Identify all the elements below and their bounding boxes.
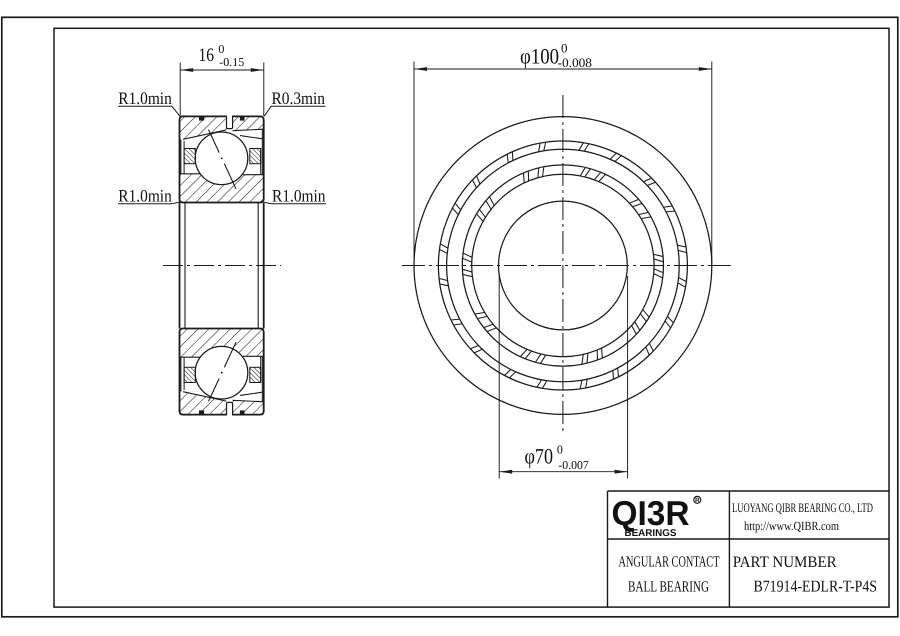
svg-text:φ100: φ100 — [520, 44, 559, 69]
svg-text:PART NUMBER: PART NUMBER — [733, 554, 837, 571]
svg-text:BALL BEARING: BALL BEARING — [628, 579, 709, 596]
svg-text:LUOYANG QIBR BEARING CO., LTD: LUOYANG QIBR BEARING CO., LTD — [732, 500, 873, 515]
svg-text:-0.15: -0.15 — [219, 55, 244, 69]
svg-text:φ70: φ70 — [525, 443, 554, 468]
svg-text:R0.3min: R0.3min — [272, 88, 326, 108]
svg-text:BEARINGS: BEARINGS — [625, 528, 677, 539]
svg-text:R1.0min: R1.0min — [272, 186, 326, 206]
svg-text:B71914-EDLR-T-P4S: B71914-EDLR-T-P4S — [754, 577, 878, 596]
svg-text:0: 0 — [561, 40, 568, 55]
svg-text:0: 0 — [557, 443, 563, 457]
svg-text:16: 16 — [199, 45, 215, 66]
svg-text:ANGULAR CONTACT: ANGULAR CONTACT — [619, 554, 720, 571]
svg-text:http://www.QIBR.com: http://www.QIBR.com — [744, 519, 839, 533]
svg-text:-0.008: -0.008 — [558, 55, 593, 70]
svg-text:0: 0 — [218, 42, 224, 56]
svg-text:R1.0min: R1.0min — [118, 88, 172, 108]
svg-text:R1.0min: R1.0min — [118, 186, 172, 206]
svg-text:R: R — [695, 497, 700, 504]
svg-text:-0.007: -0.007 — [558, 458, 589, 472]
